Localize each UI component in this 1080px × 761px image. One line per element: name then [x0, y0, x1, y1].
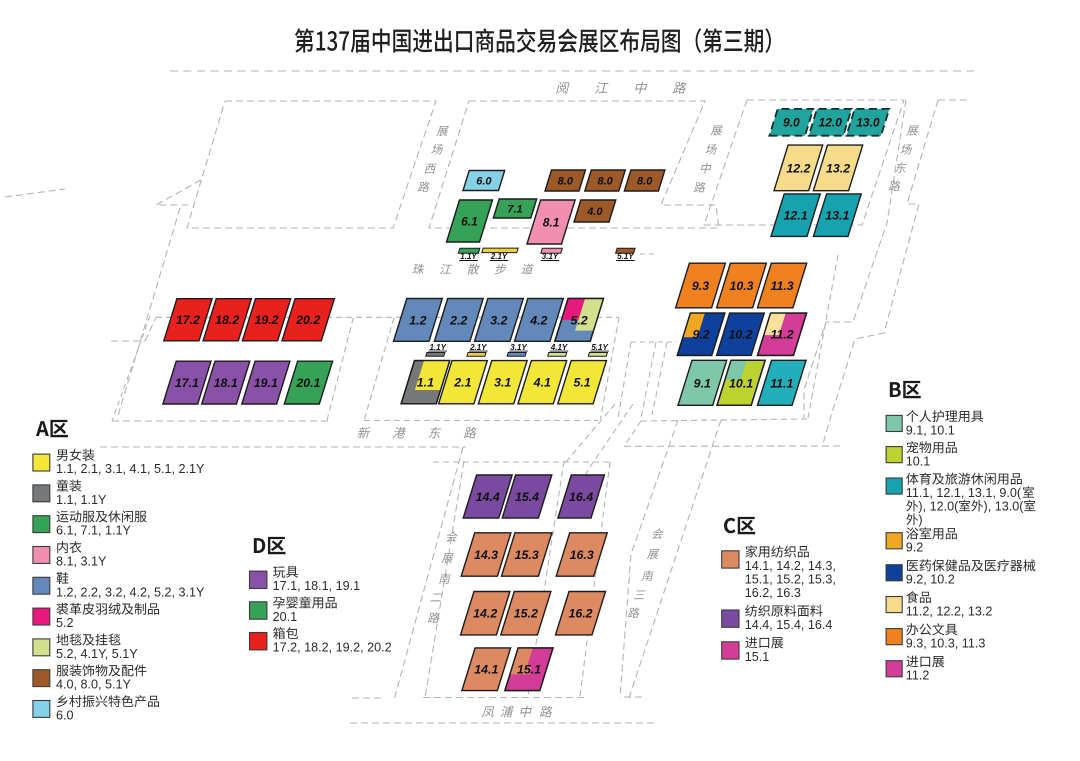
svg-text:12.1: 12.1	[784, 209, 808, 223]
svg-text:17.1, 18.1, 19.1: 17.1, 18.1, 19.1	[273, 579, 361, 593]
svg-text:3.1: 3.1	[494, 376, 511, 390]
svg-text:5.1: 5.1	[573, 376, 590, 390]
svg-text:11.2, 12.2, 13.2: 11.2, 12.2, 13.2	[906, 605, 993, 619]
svg-text:18.1: 18.1	[214, 376, 238, 390]
svg-text:9.2: 9.2	[906, 541, 924, 555]
svg-text:8.0: 8.0	[558, 176, 574, 188]
svg-text:15.1: 15.1	[745, 650, 770, 664]
svg-text:8.1: 8.1	[543, 215, 560, 229]
svg-text:2.1: 2.1	[453, 376, 471, 390]
svg-text:5.1Y: 5.1Y	[591, 343, 608, 352]
svg-text:14.1, 14.2, 14.3,: 14.1, 14.2, 14.3,	[745, 559, 836, 573]
svg-text:18.2: 18.2	[215, 313, 239, 327]
svg-text:9.0: 9.0	[783, 116, 800, 130]
svg-text:17.2: 17.2	[176, 313, 200, 327]
svg-text:20.1: 20.1	[273, 610, 298, 624]
svg-text:11.2: 11.2	[770, 328, 793, 342]
svg-text:15.4: 15.4	[515, 490, 539, 504]
svg-text:9.2: 9.2	[692, 328, 709, 342]
svg-text:1.1: 1.1	[417, 376, 434, 390]
svg-text:): )	[918, 513, 922, 527]
svg-text:16.3: 16.3	[570, 548, 594, 562]
svg-text:14.4, 15.4, 16.4: 14.4, 15.4, 16.4	[745, 618, 833, 632]
svg-text:10.2: 10.2	[728, 328, 752, 342]
svg-text:6.0: 6.0	[476, 176, 492, 188]
svg-text:4.0: 4.0	[586, 206, 603, 218]
svg-text:3.1Y: 3.1Y	[542, 252, 559, 261]
svg-text:11.2: 11.2	[906, 669, 930, 683]
svg-text:15.3: 15.3	[515, 548, 539, 562]
svg-text:10.1: 10.1	[729, 376, 753, 390]
svg-text:6.1, 7.1, 1.1Y: 6.1, 7.1, 1.1Y	[56, 524, 132, 538]
svg-text:15.1: 15.1	[517, 663, 541, 677]
svg-text:9.1: 9.1	[694, 376, 711, 390]
svg-text:2.1Y: 2.1Y	[469, 343, 487, 352]
svg-text:14.4: 14.4	[476, 490, 500, 504]
svg-text:9.3: 9.3	[692, 279, 709, 293]
svg-text:5.1Y: 5.1Y	[617, 252, 634, 261]
svg-text:11.1, 12.1, 13.1, 9.0(: 11.1, 12.1, 13.1, 9.0(	[906, 486, 1022, 500]
svg-text:12.0: 12.0	[819, 116, 843, 130]
svg-text:12.2: 12.2	[786, 161, 810, 175]
svg-text:8.0: 8.0	[597, 176, 613, 188]
svg-text:2.1Y: 2.1Y	[490, 252, 508, 261]
svg-text:), 13.0(: ), 13.0(	[984, 500, 1025, 514]
svg-text:1.1, 1.1Y: 1.1, 1.1Y	[56, 493, 107, 507]
svg-text:1.1Y: 1.1Y	[460, 252, 477, 261]
svg-text:1.1, 2.1, 3.1, 4.1, 5.1, 2.1Y: 1.1, 2.1, 3.1, 4.1, 5.1, 2.1Y	[56, 462, 205, 476]
svg-text:9.3, 10.3, 11.3: 9.3, 10.3, 11.3	[906, 637, 986, 651]
svg-text:13.0: 13.0	[856, 116, 880, 130]
svg-text:14.1: 14.1	[474, 663, 498, 677]
svg-text:4.0, 8.0, 5.1Y: 4.0, 8.0, 5.1Y	[56, 678, 132, 692]
svg-text:6.0: 6.0	[56, 709, 74, 723]
svg-text:1.2: 1.2	[409, 313, 426, 327]
svg-text:7.1: 7.1	[507, 204, 522, 216]
svg-text:3.2: 3.2	[490, 313, 507, 327]
svg-text:2.2: 2.2	[449, 313, 467, 327]
svg-text:4.1: 4.1	[533, 376, 551, 390]
svg-text:15.1, 15.2, 15.3,: 15.1, 15.2, 15.3,	[745, 572, 836, 586]
svg-text:11.3: 11.3	[770, 279, 793, 293]
svg-text:1.2, 2.2, 3.2, 4.2, 5.2, 3.1Y: 1.2, 2.2, 3.2, 4.2, 5.2, 3.1Y	[56, 585, 205, 599]
svg-text:3.1Y: 3.1Y	[510, 343, 527, 352]
svg-text:19.2: 19.2	[254, 313, 278, 327]
svg-text:10.3: 10.3	[729, 279, 753, 293]
svg-text:13.2: 13.2	[826, 161, 850, 175]
svg-text:19.1: 19.1	[254, 376, 278, 390]
svg-text:5.2, 4.1Y, 5.1Y: 5.2, 4.1Y, 5.1Y	[56, 647, 138, 661]
svg-text:), 12.0(: ), 12.0(	[918, 500, 959, 514]
svg-text:8.1, 3.1Y: 8.1, 3.1Y	[56, 555, 107, 569]
svg-text:5.2: 5.2	[570, 313, 587, 327]
svg-text:4.1Y: 4.1Y	[550, 343, 568, 352]
svg-text:10.1: 10.1	[906, 455, 931, 469]
svg-text:9.1, 10.1: 9.1, 10.1	[906, 423, 955, 437]
svg-text:5.2: 5.2	[56, 616, 74, 630]
svg-text:20.1: 20.1	[295, 376, 320, 390]
svg-text:20.2: 20.2	[295, 313, 320, 327]
svg-text:14.2: 14.2	[473, 607, 497, 621]
svg-text:16.4: 16.4	[569, 490, 593, 504]
svg-text:6.1: 6.1	[461, 214, 478, 228]
svg-text:13.1: 13.1	[825, 209, 849, 223]
svg-text:16.2: 16.2	[568, 607, 592, 621]
svg-text:15.2: 15.2	[514, 607, 538, 621]
svg-text:1.1Y: 1.1Y	[429, 343, 446, 352]
svg-text:9.2, 10.2: 9.2, 10.2	[906, 573, 955, 587]
svg-text:8.0: 8.0	[637, 176, 653, 188]
svg-text:16.2, 16.3: 16.2, 16.3	[745, 586, 801, 600]
svg-text:14.3: 14.3	[474, 548, 498, 562]
svg-text:11.1: 11.1	[770, 376, 793, 390]
svg-text:17.1: 17.1	[175, 376, 199, 390]
svg-text:4.2: 4.2	[529, 313, 547, 327]
svg-text:17.2, 18.2, 19.2, 20.2: 17.2, 18.2, 19.2, 20.2	[273, 641, 392, 655]
